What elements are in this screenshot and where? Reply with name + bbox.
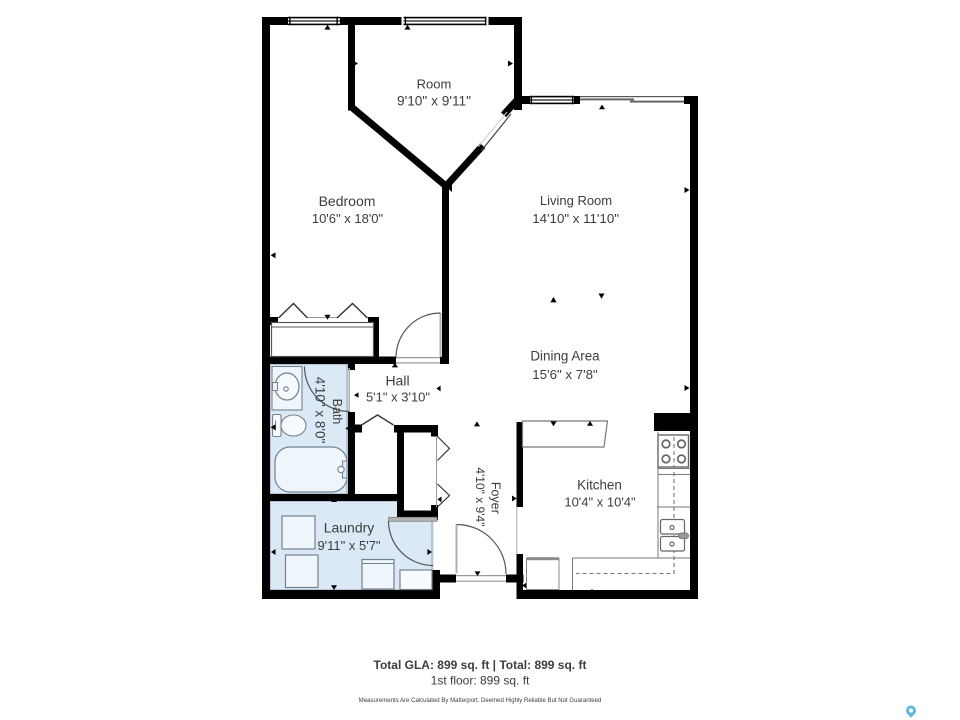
svg-text:10'4" x 10'4": 10'4" x 10'4"	[564, 495, 636, 510]
svg-text:15'6" x 7'8": 15'6" x 7'8"	[532, 367, 598, 382]
svg-text:Laundry: Laundry	[324, 519, 375, 535]
svg-text:4'10" x 8'0": 4'10" x 8'0"	[313, 377, 328, 444]
svg-text:14'10" x 11'10": 14'10" x 11'10"	[532, 211, 619, 226]
svg-text:1st floor: 899 sq. ft: 1st floor: 899 sq. ft	[431, 673, 530, 687]
svg-text:10'6" x 18'0": 10'6" x 18'0"	[312, 211, 384, 226]
svg-text:4'10" x 9'4": 4'10" x 9'4"	[473, 467, 487, 526]
svg-text:Measurements Are Calculated By: Measurements Are Calculated By Matterpor…	[359, 698, 602, 704]
svg-text:9'11" x 5'7": 9'11" x 5'7"	[317, 538, 380, 553]
svg-text:Hall: Hall	[385, 373, 409, 389]
svg-text:Bath: Bath	[330, 399, 344, 425]
svg-text:9'10" x 9'11": 9'10" x 9'11"	[397, 94, 471, 109]
svg-text:Bedroom: Bedroom	[319, 193, 376, 209]
svg-text:Room: Room	[417, 77, 452, 92]
svg-text:Total GLA: 899 sq. ft | Total:: Total GLA: 899 sq. ft | Total: 899 sq. f…	[374, 658, 587, 672]
svg-text:Living Room: Living Room	[540, 193, 612, 208]
svg-text:Foyer: Foyer	[489, 482, 503, 514]
svg-text:Kitchen: Kitchen	[577, 477, 622, 492]
svg-text:5'1" x 3'10": 5'1" x 3'10"	[366, 390, 430, 405]
svg-text:Dining Area: Dining Area	[530, 349, 600, 364]
